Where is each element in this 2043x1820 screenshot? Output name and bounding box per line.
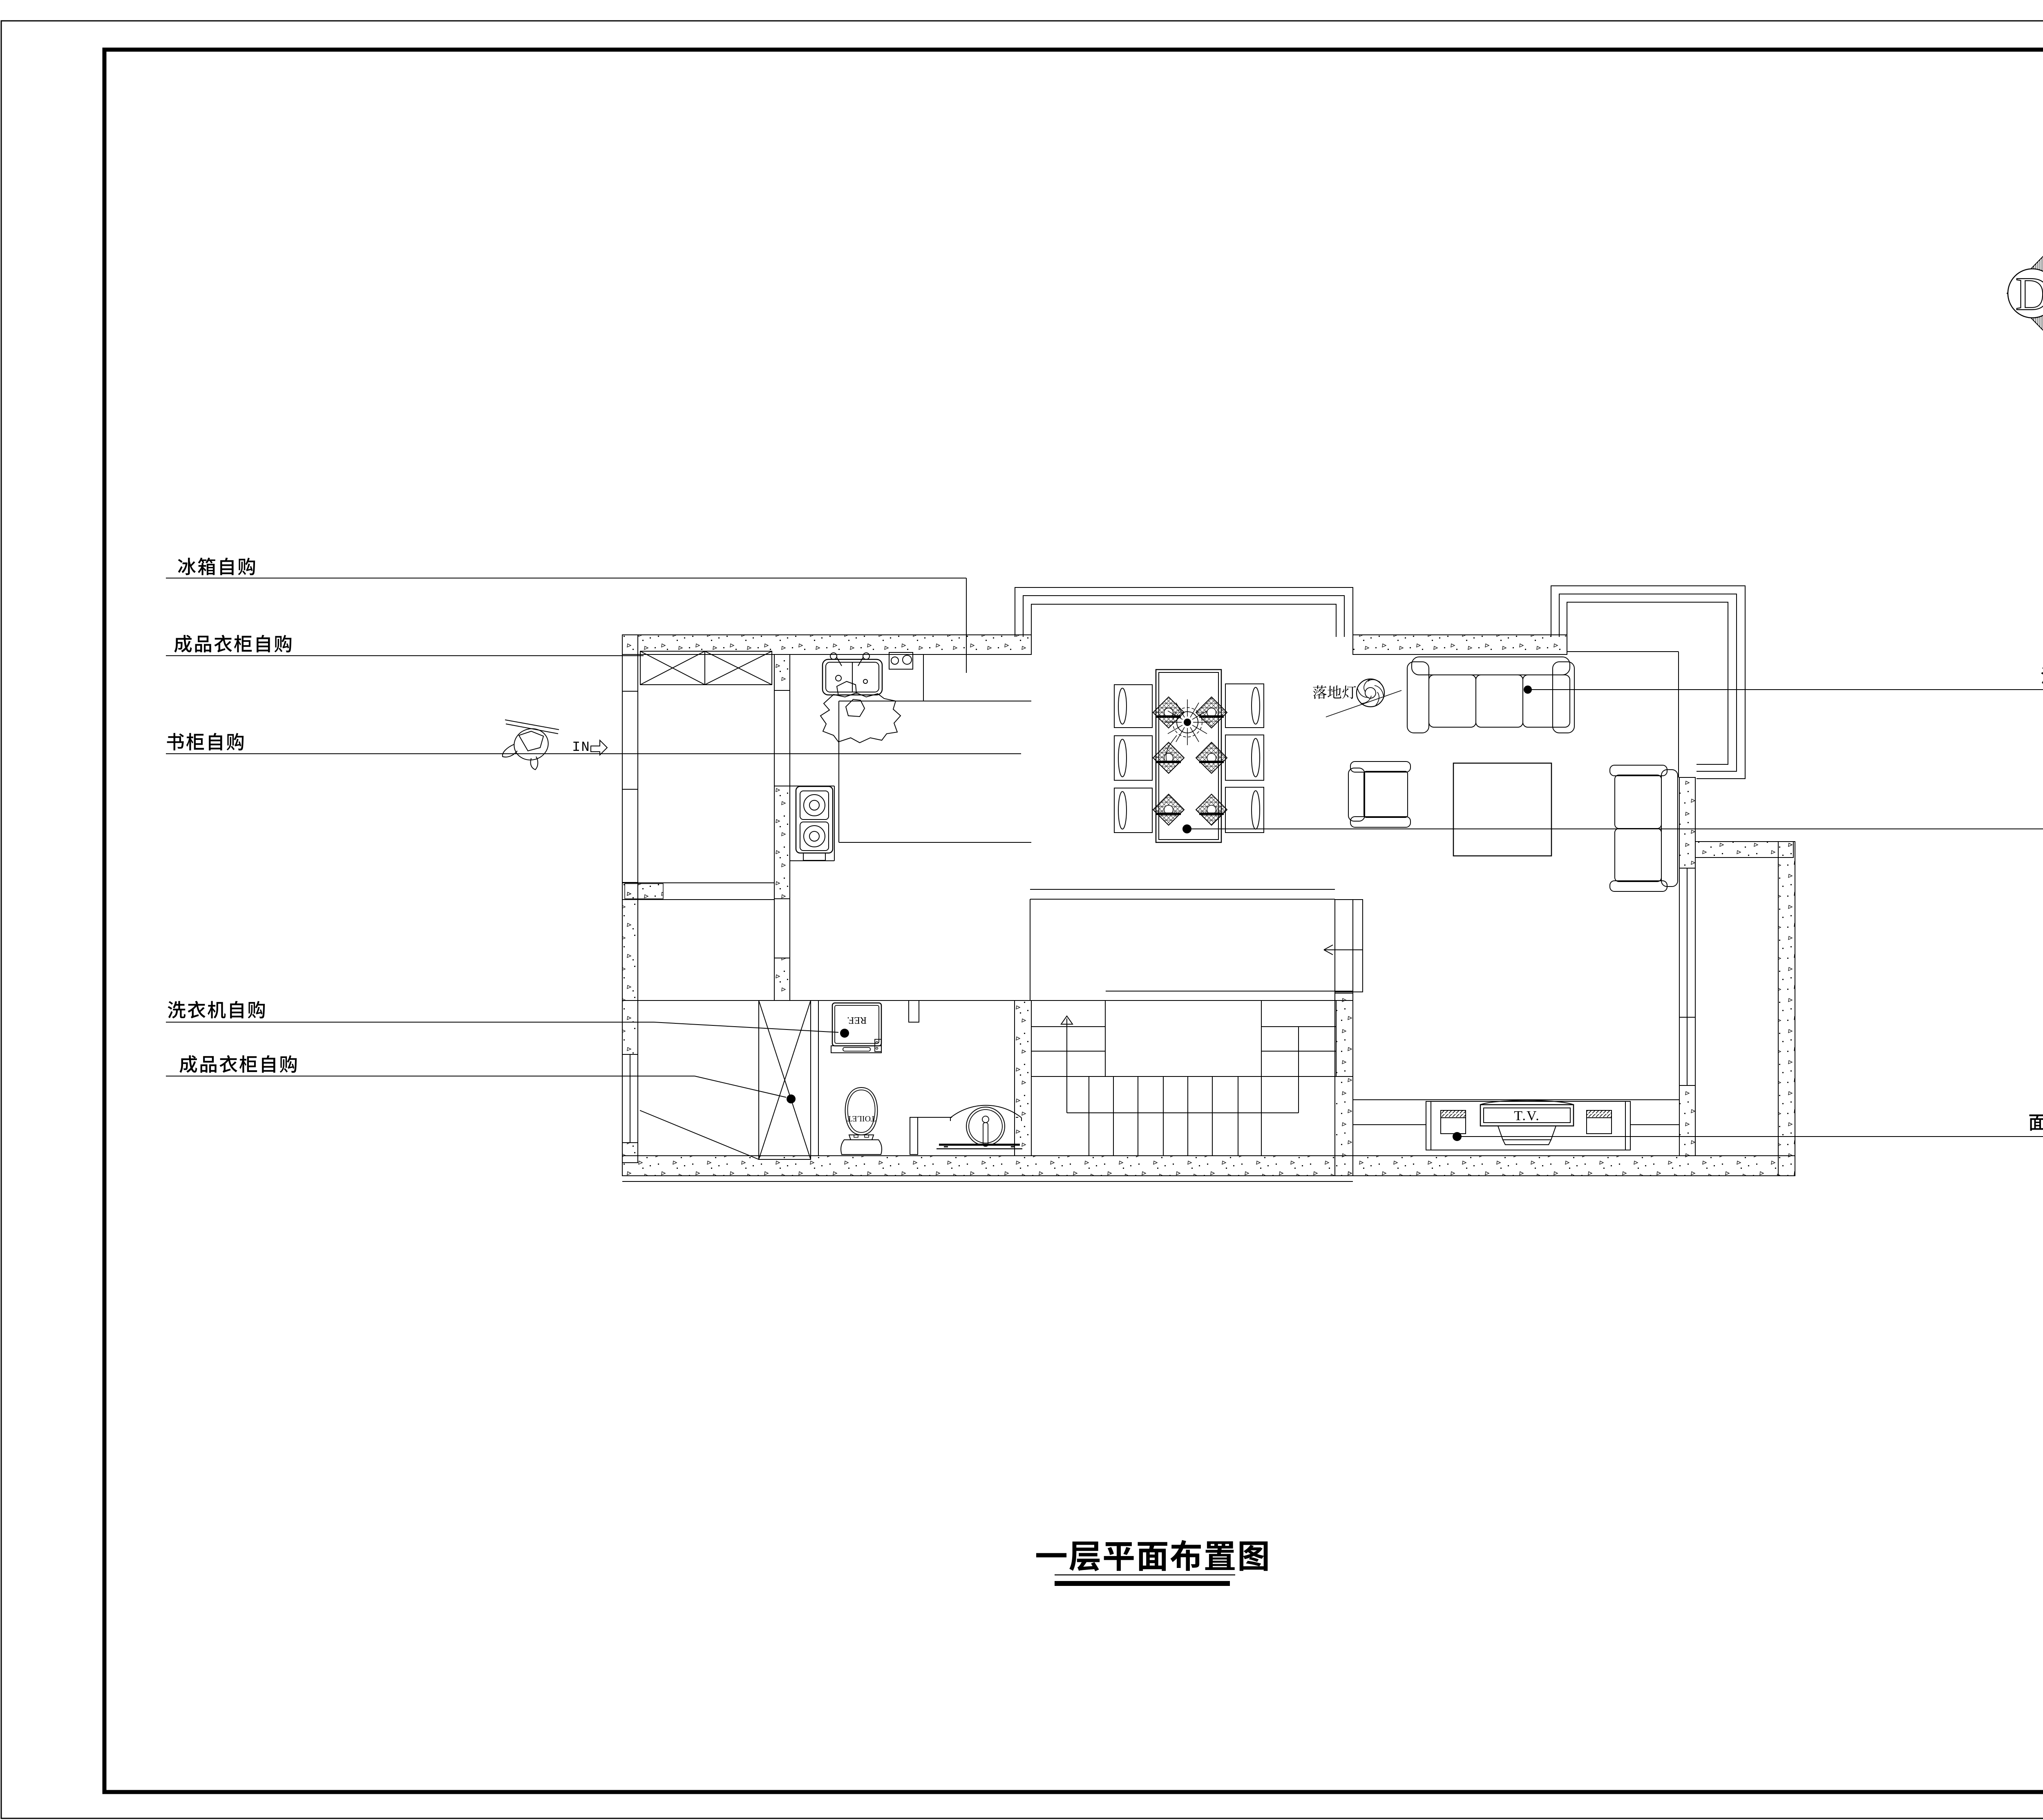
svg-text:T.V.: T.V. [1514, 1108, 1540, 1123]
svg-text:IN: IN [572, 740, 590, 755]
svg-text:D: D [2015, 268, 2043, 320]
svg-text:REF.: REF. [847, 1015, 867, 1025]
svg-text:TOILET: TOILET [847, 1114, 876, 1123]
